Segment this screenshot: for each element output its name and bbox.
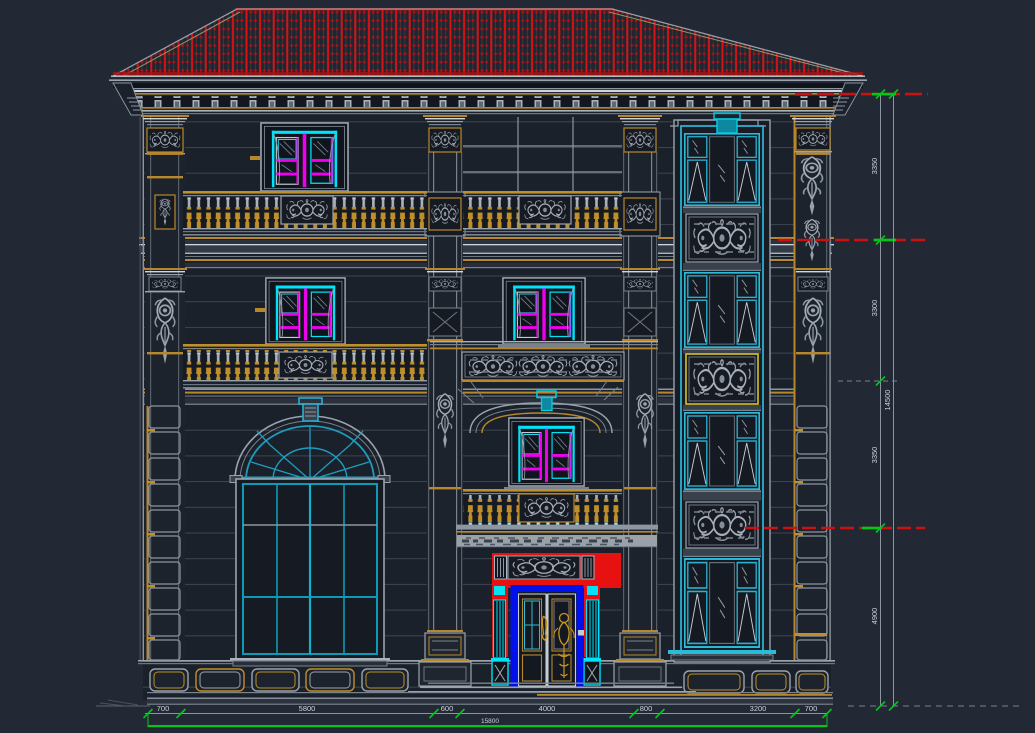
- svg-text:4000: 4000: [539, 704, 556, 713]
- svg-text:600: 600: [441, 704, 454, 713]
- svg-text:3350: 3350: [870, 158, 879, 175]
- svg-text:3200: 3200: [750, 704, 767, 713]
- svg-text:700: 700: [157, 704, 170, 713]
- svg-text:5800: 5800: [299, 704, 316, 713]
- svg-text:15800: 15800: [481, 718, 499, 725]
- svg-text:3300: 3300: [870, 300, 879, 317]
- svg-text:800: 800: [640, 704, 653, 713]
- svg-text:700: 700: [805, 704, 818, 713]
- svg-text:3350: 3350: [870, 447, 879, 464]
- svg-text:4900: 4900: [870, 608, 879, 625]
- svg-text:14500: 14500: [883, 390, 892, 411]
